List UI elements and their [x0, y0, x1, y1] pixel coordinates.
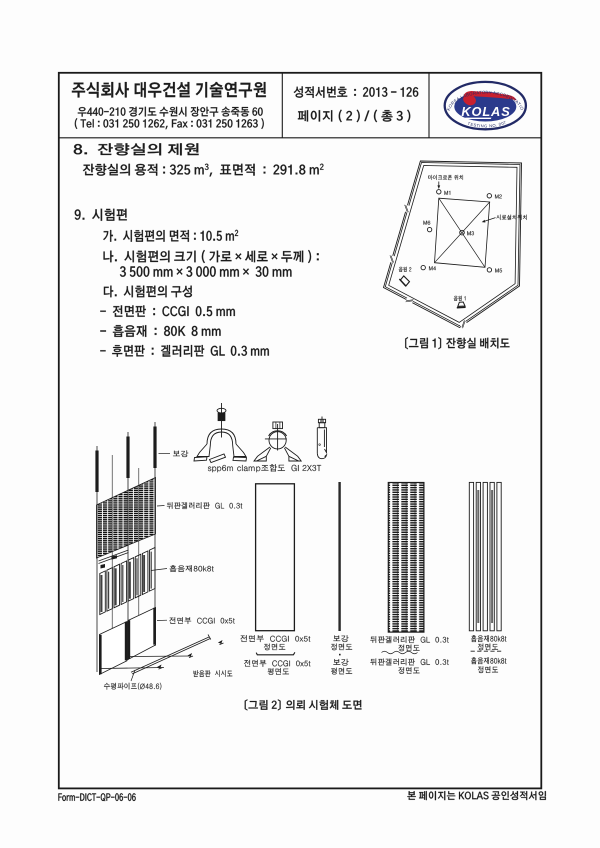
svg-text:KOLAS: KOLAS — [461, 104, 510, 119]
